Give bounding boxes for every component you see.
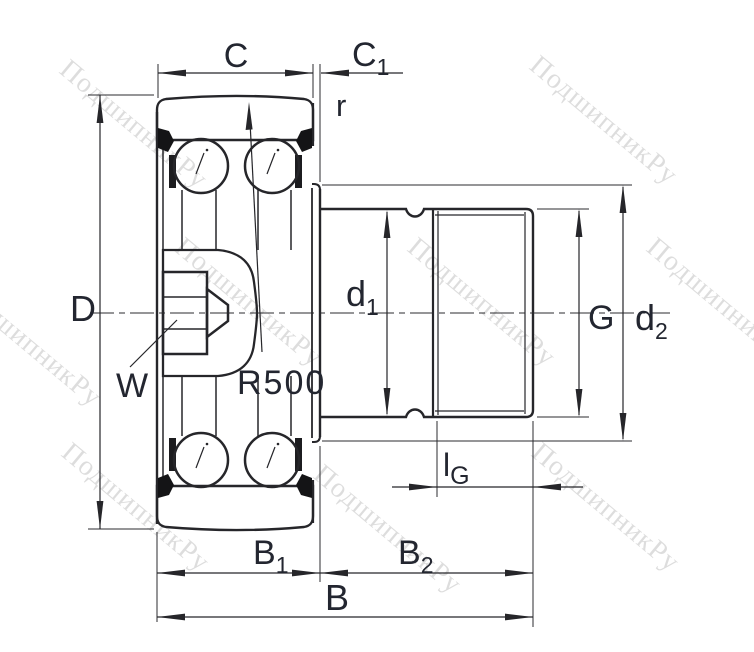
seal-top-right (296, 128, 312, 152)
dim-label-W: W (116, 367, 148, 405)
dim-label-d1: d1 (346, 273, 379, 320)
dim-label-R500: R500 (237, 364, 326, 402)
dim-label-r: r (336, 88, 346, 123)
dim-C1: C1 (320, 36, 403, 182)
watermark-text: ПодшипникРу (524, 50, 684, 192)
ball-bottom-left (174, 433, 228, 487)
callout-W: W (116, 320, 177, 405)
watermark-text: ПодшипникРу (56, 437, 216, 579)
dim-label-D: D (70, 288, 96, 329)
drawing-canvas: ПодшипникРу ПодшипникРу ПодшипникРу Подш… (0, 0, 754, 652)
ball-bottom-right (245, 433, 299, 487)
watermark-text: ПодшипникРу (169, 232, 329, 374)
dim-label-d2: d2 (635, 297, 668, 344)
leader-W (130, 320, 177, 367)
dim-label-lG: lG (443, 447, 470, 490)
dim-label-C1: C1 (352, 36, 389, 80)
stud-collar-bottom-edge (320, 410, 433, 418)
outer-ring-top-section (157, 96, 313, 140)
seal-bottom-right (296, 474, 312, 498)
seal-bottom-left (158, 474, 174, 498)
watermark-text: ПодшипникРу (54, 54, 214, 196)
watermark-text: ПодшипникРу (526, 437, 686, 579)
dim-label-B1: B1 (253, 534, 288, 578)
dim-label-B2: B2 (398, 534, 433, 578)
watermark-text: ПодшипникРу (641, 232, 754, 374)
dim-label-C: C (224, 37, 249, 75)
outer-ring-bottom-section (157, 486, 313, 530)
watermark-text: ПодшипникРу (402, 232, 562, 374)
dim-B: B (157, 577, 533, 620)
stud-collar-top-edge (320, 209, 433, 217)
dim-label-G: G (588, 299, 614, 337)
dim-C: C (158, 37, 313, 98)
dim-label-B: B (325, 577, 349, 618)
